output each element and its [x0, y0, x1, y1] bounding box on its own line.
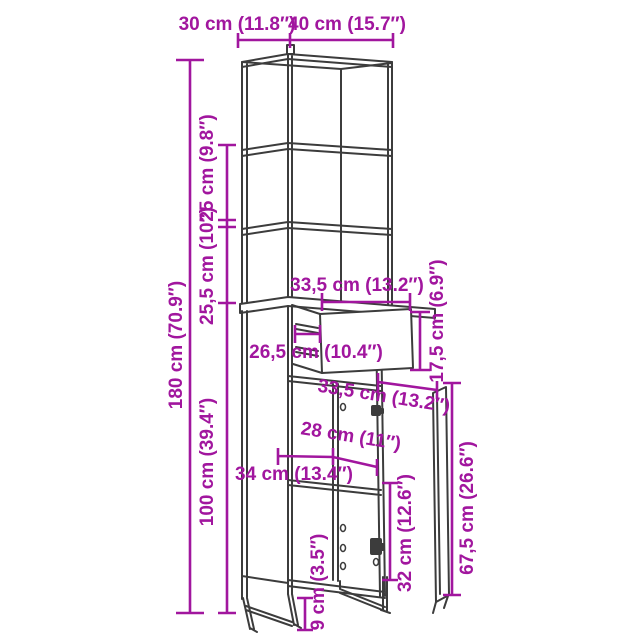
- furniture-artwork: [240, 45, 449, 632]
- dim-label-door-height: 67,5 cm (26.6″): [457, 441, 478, 575]
- dim-label-top-width: 40 cm (15.7″): [288, 14, 406, 35]
- dowel-hole: [341, 525, 346, 532]
- dim-label-drawer-pullout: 26,5 cm (10.4″): [249, 342, 383, 363]
- shelf-unit-top-edges: [242, 54, 392, 69]
- furniture-dimension-diagram: 30 cm (11.8″) 40 cm (15.7″) 180 cm (70.9…: [0, 0, 640, 640]
- dim-label-upper-shelf-spacing: 25 cm (9.8″): [197, 114, 218, 221]
- dim-label-compartment-height: 32 cm (12.6″): [395, 474, 416, 592]
- shelf-unit-posts: [242, 55, 392, 312]
- dimension-diagram-page: 30 cm (11.8″) 40 cm (15.7″) 180 cm (70.9…: [0, 0, 640, 640]
- dowel-hole: [374, 559, 379, 566]
- hinge-top-arm: [380, 408, 384, 414]
- dim-label-leg-height: 9 cm (3.5″): [308, 534, 329, 631]
- dim-label-top-depth: 30 cm (11.8″): [179, 14, 296, 35]
- hinge-bottom-arm: [380, 543, 384, 551]
- dowel-hole: [341, 545, 346, 552]
- dim-label-drawer-front-height: 17,5 cm (6.9″): [427, 259, 448, 382]
- dim-label-base-depth: 34 cm (13.4″): [235, 464, 353, 485]
- drawer-front: [320, 309, 413, 373]
- dim-label-lower-shelf-spacing: 25,5 cm (10″): [197, 207, 218, 325]
- dim-label-lower-unit-height: 100 cm (39.4″): [197, 398, 218, 526]
- dim-label-inner-width: 28 cm (11″): [299, 418, 402, 455]
- dowel-hole: [341, 563, 346, 570]
- dowel-hole: [341, 404, 346, 411]
- dim-label-drawer-width: 33,5 cm (13.2″): [290, 275, 424, 296]
- dim-label-total-height: 180 cm (70.9″): [166, 281, 187, 409]
- hinge-top: [371, 405, 381, 416]
- shelf-lines: [242, 143, 392, 235]
- door-panel: [433, 387, 449, 602]
